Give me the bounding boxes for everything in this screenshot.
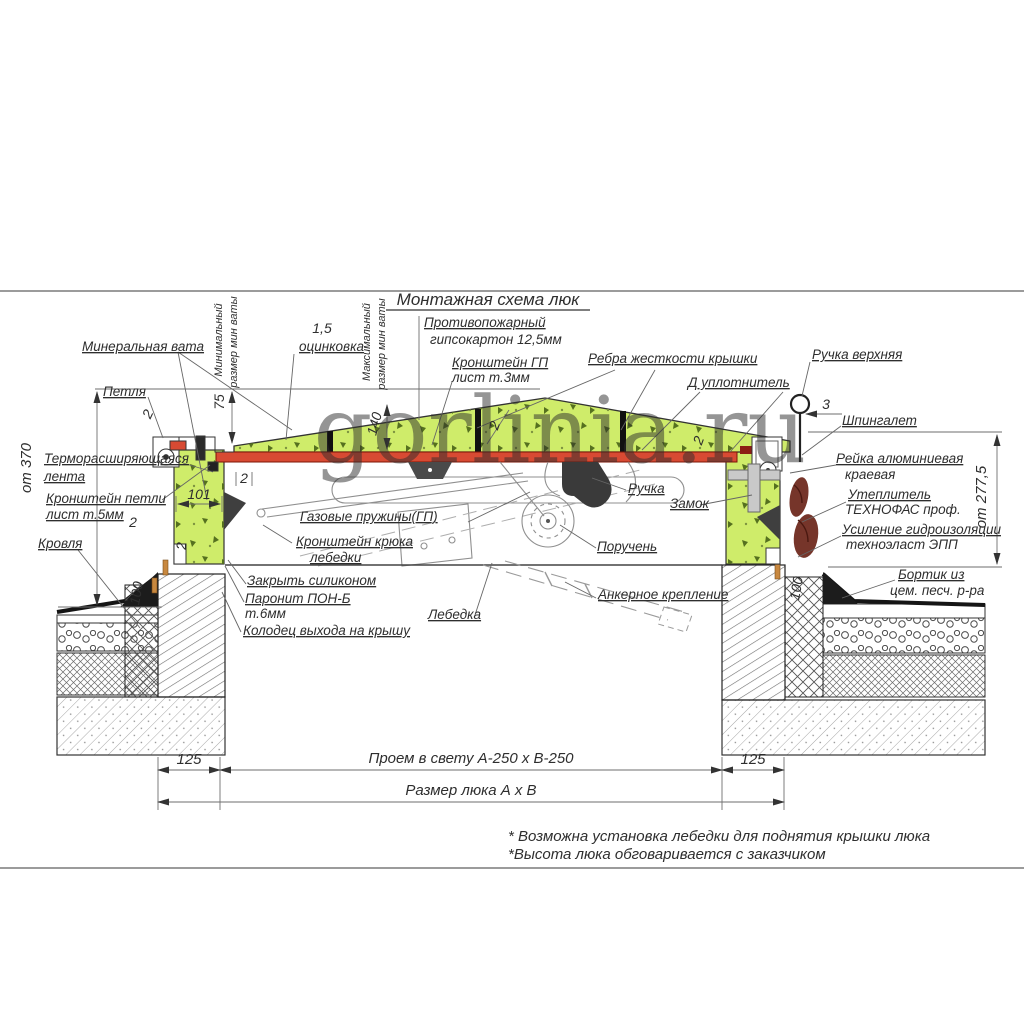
label-top-handle: Ручка верхняя xyxy=(812,347,902,362)
page: gorlinia.ru Монтажная схема люк Минераль… xyxy=(0,0,1024,1024)
label-max-size-1: Максимальный xyxy=(361,303,373,381)
label-min-size-2: размер мин ваты xyxy=(228,296,240,388)
label-zinc-thickness: 1,5 xyxy=(312,320,332,336)
label-well: Колодец выхода на крышу xyxy=(243,623,411,638)
technical-drawing: gorlinia.ru Монтажная схема люк Минераль… xyxy=(0,0,1024,1024)
label-paronite-2: т.6мм xyxy=(245,606,286,621)
dim-101: 101 xyxy=(187,486,210,502)
label-alu-rail-1: Рейка алюминиевая xyxy=(836,451,963,466)
note-1: * Возможна установка лебедки для подняти… xyxy=(508,828,930,845)
label-mineral-wool: Минеральная вата xyxy=(82,339,205,354)
label-anchor: Анкерное крепление xyxy=(597,587,728,602)
label-silicone: Закрыть силиконом xyxy=(247,573,376,588)
label-fireproof-2: гипсокартон 12,5мм xyxy=(430,332,562,347)
dim-2: 2 xyxy=(128,514,137,530)
watermark-text: gorlinia.ru xyxy=(313,377,806,484)
dim-125-left: 125 xyxy=(176,751,202,768)
label-curb-2: цем. песч. р-ра xyxy=(890,583,985,598)
label-thermo-1: Терморасширяющаяся xyxy=(44,451,189,466)
label-paronite-1: Паронит ПОН-Б xyxy=(245,591,351,606)
label-ribs: Ребра жесткости крышки xyxy=(588,351,758,366)
dim-75: 75 xyxy=(211,394,227,410)
dim-2: 2 xyxy=(173,542,189,551)
shaft-wall-right xyxy=(722,565,785,700)
label-min-size-1: Минимальный xyxy=(213,303,225,376)
label-hinge-bracket-1: Кронштейн петли xyxy=(46,491,166,506)
anchor-pin xyxy=(152,578,157,593)
label-hydro-2: техноэласт ЭПП xyxy=(846,537,958,552)
anchor-pin xyxy=(163,560,168,575)
label-hook-bracket-1: Кронштейн крюка xyxy=(296,534,413,549)
label-alu-rail-2: краевая xyxy=(845,467,895,482)
label-seal: Д уплотнитель xyxy=(686,375,790,390)
notes: * Возможна установка лебедки для подняти… xyxy=(508,828,930,863)
dim-2: 2 xyxy=(239,470,248,486)
dim-height-right: от 277,5 xyxy=(973,465,990,528)
label-thermo-2: лента xyxy=(43,469,86,484)
shaft-walls xyxy=(120,560,858,700)
label-latch: Шпингалет xyxy=(842,413,917,428)
drawing-title: Монтажная схема люк xyxy=(397,290,581,309)
note-2: *Высота люка обговаривается с заказчиком xyxy=(508,846,826,863)
label-zinc: оцинковка xyxy=(299,339,364,354)
dim-hatch-size: Размер люка А х В xyxy=(405,782,536,799)
label-lock: Замок xyxy=(670,496,710,511)
label-max-size-2: размер мин ваты xyxy=(376,298,388,390)
shaft-wall-left xyxy=(158,574,225,697)
dim-height-left: от 370 xyxy=(18,442,35,493)
label-curb-1: Бортик из xyxy=(898,567,964,582)
label-hook-bracket-2: лебедки xyxy=(309,550,362,565)
label-roof: Кровля xyxy=(38,536,82,551)
dim-2: 2 xyxy=(138,407,156,422)
label-winch: Лебедка xyxy=(427,607,482,622)
label-gp-bracket-2: лист т.3мм xyxy=(451,370,530,385)
label-insulation-2: ТЕХНОФАС проф. xyxy=(845,502,961,517)
label-fireproof-1: Противопожарный xyxy=(424,315,546,330)
label-hinge: Петля xyxy=(103,384,146,399)
label-gas-springs: Газовые пружины(ГП) xyxy=(300,509,438,524)
label-handrail: Поручень xyxy=(597,539,657,554)
frame-wedge-left xyxy=(224,492,246,530)
label-hinge-bracket-2: лист т.5мм xyxy=(45,507,124,522)
dim-125-right: 125 xyxy=(740,751,766,768)
latch-handle xyxy=(791,513,821,560)
anchor-pin xyxy=(775,563,780,579)
dim-3: 3 xyxy=(822,396,830,412)
dim-opening: Проем в свету А-250 х В-250 xyxy=(368,750,574,767)
label-gp-bracket-1: Кронштейн ГП xyxy=(452,355,548,370)
label-handle: Ручка xyxy=(628,481,665,496)
label-insulation-1: Утеплитель xyxy=(847,487,931,502)
